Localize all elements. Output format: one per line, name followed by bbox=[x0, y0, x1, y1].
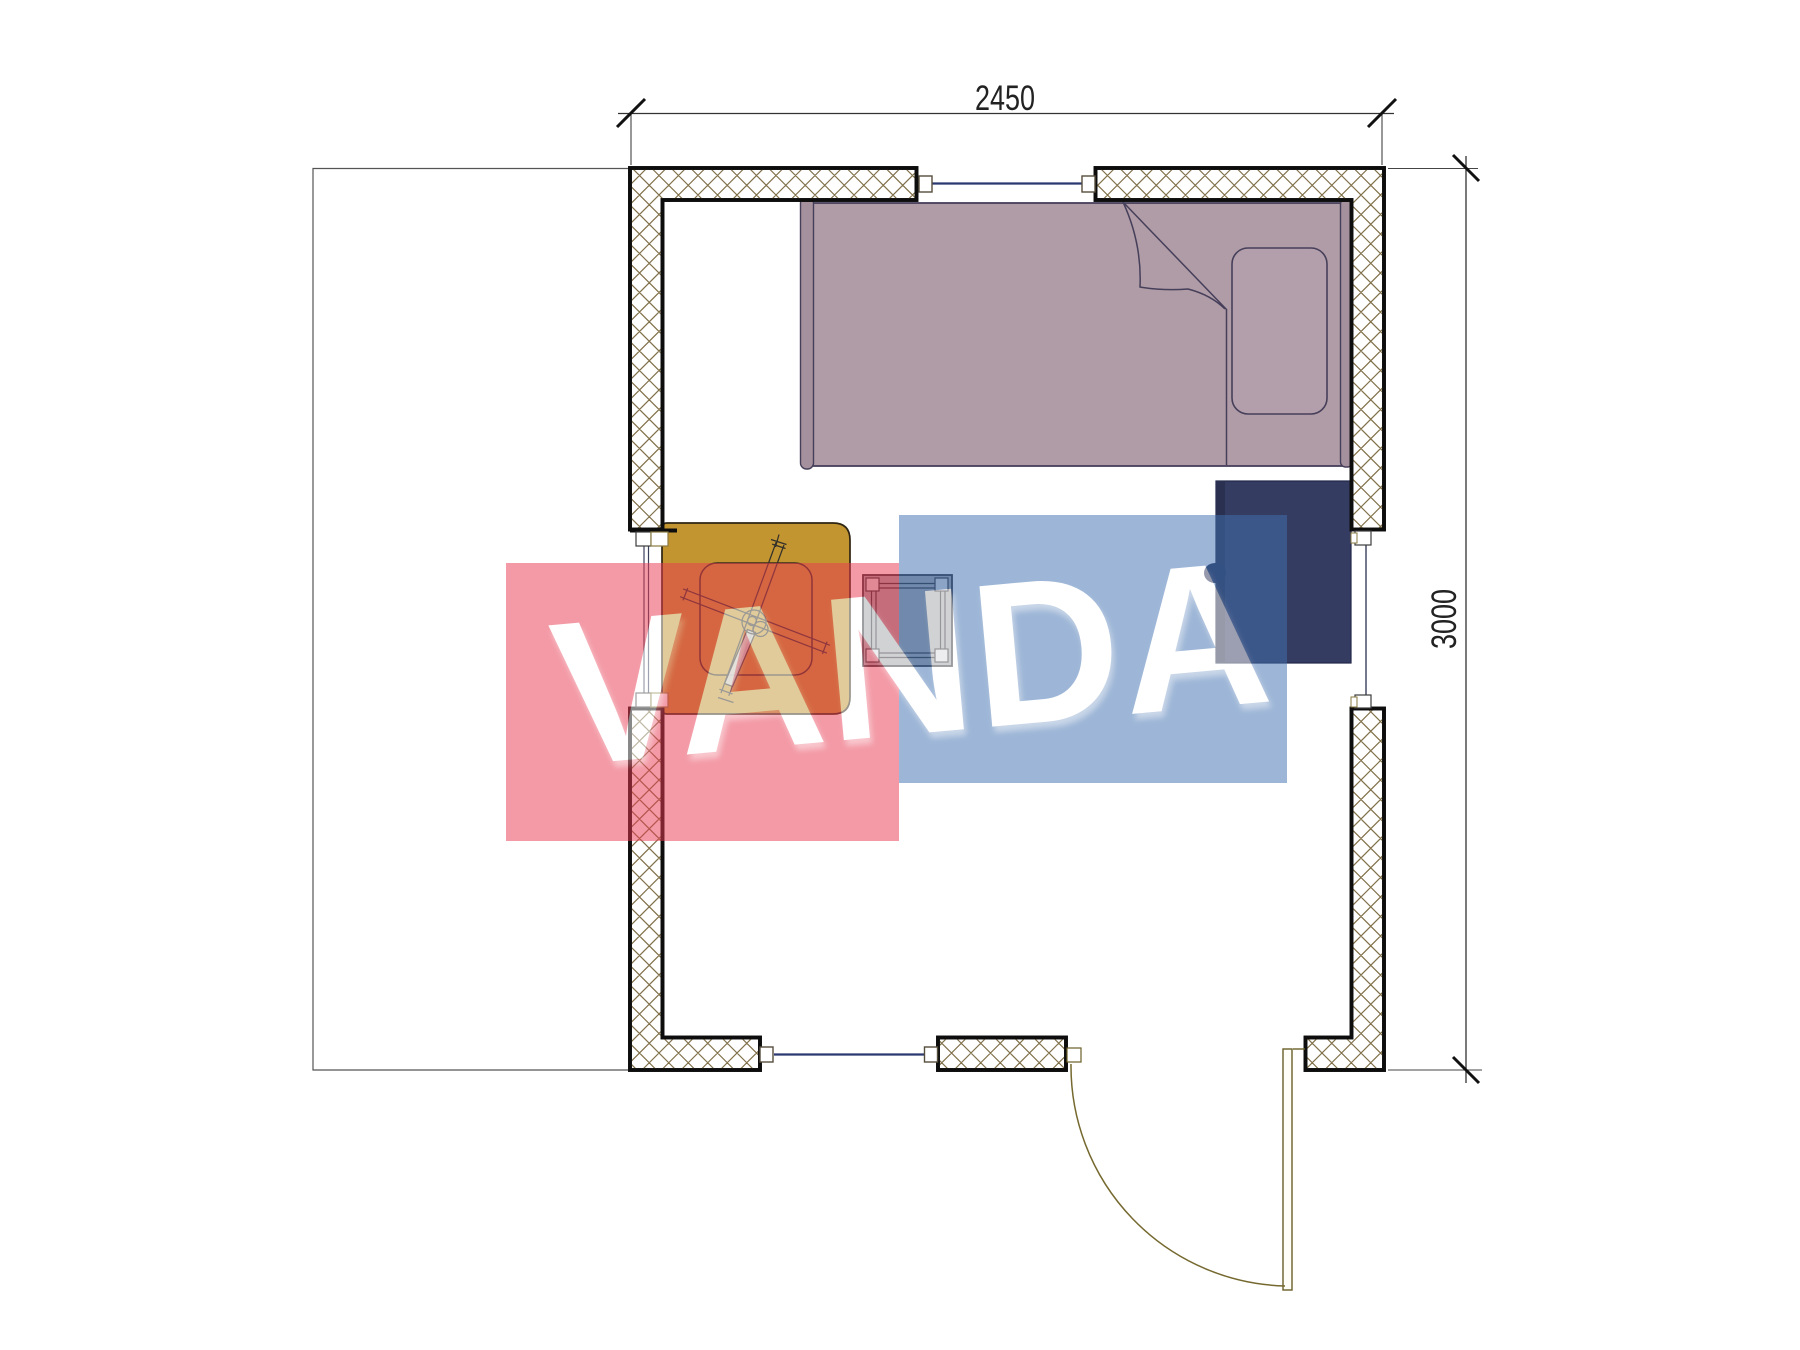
svg-text:2450: 2450 bbox=[975, 79, 1035, 118]
svg-text:3000: 3000 bbox=[1425, 589, 1464, 649]
